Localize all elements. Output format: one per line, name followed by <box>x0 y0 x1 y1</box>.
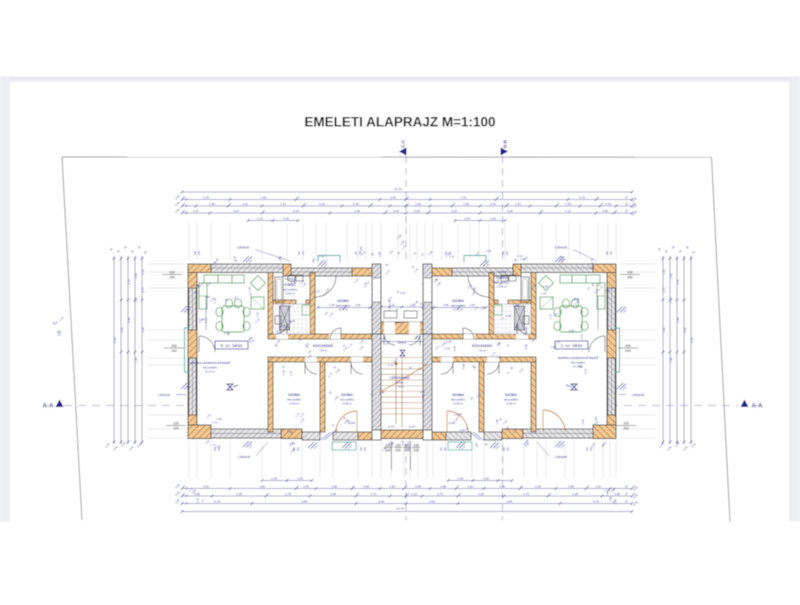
svg-text:1.98: 1.98 <box>513 304 519 308</box>
svg-text:240: 240 <box>594 416 598 421</box>
svg-text:1.93: 1.93 <box>303 484 309 488</box>
svg-text:100: 100 <box>355 250 358 255</box>
svg-text:0.98: 0.98 <box>461 363 465 369</box>
svg-text:1.98: 1.98 <box>421 394 425 400</box>
svg-text:100: 100 <box>440 446 443 451</box>
svg-text:2.16: 2.16 <box>444 346 450 350</box>
svg-text:4.46: 4.46 <box>676 317 680 323</box>
svg-text:12.58 m²: 12.58 m² <box>338 309 348 312</box>
svg-text:15: 15 <box>305 344 309 347</box>
svg-text:100: 100 <box>413 443 419 447</box>
svg-text:pm60: pm60 <box>449 421 456 425</box>
svg-text:90: 90 <box>485 443 488 447</box>
svg-text:1.03: 1.03 <box>541 291 547 295</box>
svg-text:7.51 m²: 7.51 m² <box>319 350 328 353</box>
svg-text:1.03: 1.03 <box>242 202 248 206</box>
svg-text:200: 200 <box>297 446 300 451</box>
svg-text:2.38: 2.38 <box>236 492 242 496</box>
svg-text:0.90: 0.90 <box>443 303 449 307</box>
svg-text:1.06: 1.06 <box>662 327 666 333</box>
svg-text:90: 90 <box>579 365 582 369</box>
svg-text:2.40: 2.40 <box>379 390 385 394</box>
svg-text:0.10: 0.10 <box>490 202 496 206</box>
svg-text:240: 240 <box>171 349 177 353</box>
svg-text:2.20: 2.20 <box>411 492 417 496</box>
svg-text:NAPPALI-KONYHA-ÉTKEZŐ: NAPPALI-KONYHA-ÉTKEZŐ <box>558 355 599 360</box>
svg-text:1.98: 1.98 <box>216 417 222 421</box>
svg-text:3. sz. lakás: 3. sz. lakás <box>561 343 584 348</box>
svg-text:1.98: 1.98 <box>551 345 557 349</box>
svg-text:pm10: pm10 <box>388 425 395 429</box>
svg-text:2.78: 2.78 <box>285 492 291 496</box>
svg-text:8. sz. lakás: 8. sz. lakás <box>221 343 244 348</box>
svg-text:0.97: 0.97 <box>193 209 199 213</box>
svg-text:75: 75 <box>333 366 336 370</box>
svg-text:240: 240 <box>420 390 425 394</box>
svg-text:2.10: 2.10 <box>579 334 583 340</box>
svg-text:0.90: 0.90 <box>602 209 608 213</box>
svg-text:100: 100 <box>293 446 296 451</box>
svg-text:1.50: 1.50 <box>463 202 469 206</box>
svg-text:3.98: 3.98 <box>301 499 307 503</box>
svg-text:2.16: 2.16 <box>662 269 666 275</box>
svg-text:240: 240 <box>359 246 363 251</box>
svg-text:2.30: 2.30 <box>353 202 359 206</box>
svg-text:1.22: 1.22 <box>257 216 263 220</box>
svg-text:Lábazat: Lábazat <box>237 246 249 250</box>
svg-text:0.90: 0.90 <box>393 209 399 213</box>
svg-text:2.40: 2.40 <box>400 291 406 295</box>
svg-text:lakó padlóba: lakó padlóba <box>203 367 218 370</box>
svg-text:KÖZLEKEDŐ: KÖZLEKEDŐ <box>313 343 334 348</box>
svg-text:Lábazat: Lábazat <box>632 393 644 397</box>
svg-text:2.10: 2.10 <box>569 329 575 333</box>
svg-text:4.66: 4.66 <box>683 327 687 333</box>
svg-text:1.50: 1.50 <box>565 202 571 206</box>
svg-text:0.98: 0.98 <box>415 484 421 488</box>
svg-text:0.98: 0.98 <box>277 330 283 334</box>
svg-text:lakó padlóba: lakó padlóba <box>283 289 298 292</box>
svg-text:12.58 m²: 12.58 m² <box>453 403 463 406</box>
svg-text:MOSDÓ: MOSDÓ <box>497 271 507 274</box>
svg-text:1.03: 1.03 <box>256 312 260 318</box>
svg-text:lakó padlóba: lakó padlóba <box>451 305 466 308</box>
svg-text:1.98: 1.98 <box>134 357 138 363</box>
svg-text:lakó padlóba: lakó padlóba <box>287 399 302 402</box>
svg-text:1.98: 1.98 <box>568 484 574 488</box>
svg-text:1.75: 1.75 <box>290 319 296 323</box>
svg-text:2.75: 2.75 <box>141 287 145 293</box>
svg-text:SZOBA: SZOBA <box>288 393 300 397</box>
svg-text:2.16: 2.16 <box>247 287 251 293</box>
svg-text:200: 200 <box>385 449 391 453</box>
svg-text:200: 200 <box>395 449 401 453</box>
svg-text:2.16: 2.16 <box>141 269 145 275</box>
svg-text:A-A: A-A <box>752 403 764 410</box>
svg-text:30: 30 <box>329 391 333 394</box>
svg-text:Lábazat: Lábazat <box>555 246 567 250</box>
svg-text:2.38: 2.38 <box>572 492 578 496</box>
svg-text:100: 100 <box>623 421 629 425</box>
svg-text:2.75: 2.75 <box>370 492 376 496</box>
svg-text:100: 100 <box>395 443 401 447</box>
svg-text:1.90: 1.90 <box>134 273 138 279</box>
svg-text:A-A: A-A <box>43 403 55 410</box>
svg-text:2.30: 2.30 <box>329 303 335 307</box>
svg-text:100: 100 <box>360 446 363 451</box>
svg-text:járólap: járólap <box>395 382 404 385</box>
svg-text:150: 150 <box>169 276 175 280</box>
svg-text:1.90: 1.90 <box>669 273 673 279</box>
svg-text:2.16: 2.16 <box>134 297 138 303</box>
svg-text:2.75: 2.75 <box>248 337 252 343</box>
svg-text:0.98: 0.98 <box>363 484 369 488</box>
svg-text:3.03: 3.03 <box>451 209 457 213</box>
svg-text:C-C: C-C <box>401 139 406 148</box>
svg-text:2.10: 2.10 <box>195 498 199 504</box>
svg-text:1.66: 1.66 <box>259 484 265 488</box>
svg-text:1.98: 1.98 <box>669 357 673 363</box>
svg-text:1.20: 1.20 <box>283 216 289 220</box>
svg-text:15: 15 <box>419 302 423 305</box>
svg-text:1.98: 1.98 <box>389 484 395 488</box>
svg-text:NAPPALI-KONYHA-ÉTKEZŐ: NAPPALI-KONYHA-ÉTKEZŐ <box>190 360 231 365</box>
svg-text:SZOBA: SZOBA <box>452 299 464 303</box>
svg-text:1.03: 1.03 <box>282 370 286 376</box>
svg-text:100: 100 <box>404 443 410 447</box>
svg-text:7.51 m²: 7.51 m² <box>478 350 487 353</box>
svg-text:100: 100 <box>502 250 505 255</box>
svg-text:200: 200 <box>444 446 447 451</box>
svg-text:75: 75 <box>249 293 253 296</box>
svg-text:6.78: 6.78 <box>593 499 599 503</box>
svg-text:1.50: 1.50 <box>486 249 492 253</box>
svg-text:Bejárat: Bejárat <box>398 341 406 345</box>
svg-text:2.75: 2.75 <box>676 279 680 285</box>
svg-text:24.16: 24.16 <box>396 506 404 510</box>
svg-text:0.75: 0.75 <box>579 195 585 199</box>
svg-text:3.28: 3.28 <box>330 492 336 496</box>
svg-text:0.90: 0.90 <box>414 209 420 213</box>
svg-text:Lábazat: Lábazat <box>238 455 250 459</box>
svg-text:200: 200 <box>218 446 221 451</box>
svg-text:1.50: 1.50 <box>209 202 215 206</box>
svg-text:2.75: 2.75 <box>662 287 666 293</box>
svg-text:0.98: 0.98 <box>446 339 452 343</box>
svg-text:1.98: 1.98 <box>608 496 612 502</box>
svg-text:1.03: 1.03 <box>314 290 320 294</box>
svg-text:2.75: 2.75 <box>291 280 297 284</box>
svg-text:200: 200 <box>507 446 510 451</box>
svg-text:2.20: 2.20 <box>415 202 421 206</box>
svg-text:3.28: 3.28 <box>478 492 484 496</box>
svg-text:1.06: 1.06 <box>520 257 526 261</box>
svg-text:6.56: 6.56 <box>690 337 694 343</box>
svg-text:1.93: 1.93 <box>467 484 473 488</box>
svg-text:75: 75 <box>326 288 330 291</box>
svg-text:5.29: 5.29 <box>293 209 299 213</box>
svg-text:1.98: 1.98 <box>331 484 337 488</box>
svg-text:100: 100 <box>586 446 589 451</box>
svg-text:2.75: 2.75 <box>437 492 443 496</box>
svg-text:100: 100 <box>503 446 506 451</box>
svg-text:1.50: 1.50 <box>496 355 502 359</box>
svg-text:1.75: 1.75 <box>590 258 594 264</box>
svg-text:1.48: 1.48 <box>457 476 463 480</box>
svg-text:lakó padlóba: lakó padlóba <box>504 399 519 402</box>
svg-text:pm60: pm60 <box>349 421 356 425</box>
svg-text:2.75: 2.75 <box>549 313 553 319</box>
svg-text:0.40: 0.40 <box>605 202 611 206</box>
svg-text:100: 100 <box>606 250 609 255</box>
svg-text:2.75: 2.75 <box>127 279 131 285</box>
svg-text:200: 200 <box>625 344 631 348</box>
svg-text:lakó padlóba: lakó padlóba <box>340 399 355 402</box>
svg-text:2.30: 2.30 <box>469 303 475 307</box>
svg-text:150: 150 <box>449 250 452 255</box>
svg-text:15: 15 <box>51 321 55 324</box>
svg-text:2.10: 2.10 <box>583 368 587 374</box>
svg-text:6.56: 6.56 <box>113 337 117 343</box>
svg-text:lakó padlóba: lakó padlóba <box>336 305 351 308</box>
svg-text:1.98: 1.98 <box>354 209 360 213</box>
svg-text:200: 200 <box>364 446 367 451</box>
svg-text:1.50: 1.50 <box>506 314 512 318</box>
svg-text:200: 200 <box>590 446 593 451</box>
svg-text:200: 200 <box>171 344 177 348</box>
svg-text:100: 100 <box>298 250 301 255</box>
svg-text:1.75: 1.75 <box>280 324 286 328</box>
svg-text:1.50: 1.50 <box>378 251 382 257</box>
svg-text:240: 240 <box>311 258 315 263</box>
svg-text:7.36: 7.36 <box>260 195 266 199</box>
svg-text:1.98: 1.98 <box>543 285 549 289</box>
svg-text:0.90: 0.90 <box>355 303 361 307</box>
svg-text:100: 100 <box>169 270 175 274</box>
svg-text:0.98: 0.98 <box>524 344 528 350</box>
svg-text:1.98: 1.98 <box>387 305 391 311</box>
svg-text:3.04: 3.04 <box>203 484 209 488</box>
svg-text:4.66: 4.66 <box>120 327 124 333</box>
svg-text:100: 100 <box>445 250 448 255</box>
svg-text:200: 200 <box>404 449 410 453</box>
svg-text:1.53: 1.53 <box>515 202 521 206</box>
svg-text:12.58 m²: 12.58 m² <box>289 403 299 406</box>
svg-text:7.56 m²: 7.56 m² <box>396 386 405 389</box>
svg-text:51.24 m²: 51.24 m² <box>205 371 215 374</box>
svg-text:2.40: 2.40 <box>453 345 457 351</box>
svg-text:1.03: 1.03 <box>56 330 60 336</box>
svg-text:12.58 m²: 12.58 m² <box>285 293 295 296</box>
svg-text:200: 200 <box>623 427 629 431</box>
svg-text:60: 60 <box>591 283 595 286</box>
svg-text:2.00: 2.00 <box>429 499 435 503</box>
svg-text:2.40: 2.40 <box>605 289 611 293</box>
svg-text:1.03: 1.03 <box>289 442 295 446</box>
svg-text:90: 90 <box>225 298 229 301</box>
svg-text:1.20: 1.20 <box>464 216 470 220</box>
svg-text:3.88: 3.88 <box>614 492 620 496</box>
svg-text:EMELETI ALAPRAJZ M=1:100: EMELETI ALAPRAJZ M=1:100 <box>304 115 495 130</box>
svg-text:30: 30 <box>498 418 502 421</box>
svg-text:Lábazat: Lábazat <box>158 393 170 397</box>
svg-text:pm10: pm10 <box>409 425 416 429</box>
svg-text:1.98: 1.98 <box>499 484 505 488</box>
svg-text:1.06: 1.06 <box>141 327 145 333</box>
svg-text:3.14: 3.14 <box>233 209 239 213</box>
svg-text:SZOBA: SZOBA <box>452 393 464 397</box>
svg-text:150: 150 <box>198 250 201 255</box>
svg-text:240: 240 <box>625 349 631 353</box>
svg-text:6.78: 6.78 <box>214 499 220 503</box>
svg-text:SZOBA: SZOBA <box>505 393 517 397</box>
svg-text:7.76: 7.76 <box>460 195 466 199</box>
svg-text:1.66: 1.66 <box>535 484 541 488</box>
svg-text:150: 150 <box>610 250 613 255</box>
svg-text:2.16: 2.16 <box>669 297 673 303</box>
svg-text:1.48: 1.48 <box>271 476 277 480</box>
svg-text:Lábazat: Lábazat <box>555 455 567 459</box>
svg-text:4.08: 4.08 <box>506 499 512 503</box>
svg-text:12.58 m²: 12.58 m² <box>342 403 352 406</box>
svg-text:100: 100 <box>173 421 179 425</box>
svg-text:2.14: 2.14 <box>565 209 571 213</box>
svg-text:2.00: 2.00 <box>378 499 384 503</box>
svg-text:200: 200 <box>173 427 179 431</box>
svg-text:100: 100 <box>385 443 391 447</box>
svg-text:60: 60 <box>513 258 517 261</box>
svg-text:150: 150 <box>627 276 633 280</box>
svg-text:1.06: 1.06 <box>319 254 325 258</box>
svg-text:12.58 m²: 12.58 m² <box>506 403 516 406</box>
svg-text:200: 200 <box>413 449 419 453</box>
svg-text:1.50: 1.50 <box>297 476 303 480</box>
svg-text:KÖZLEKEDŐ: KÖZLEKEDŐ <box>472 343 493 348</box>
svg-text:100: 100 <box>214 446 217 451</box>
svg-text:2.40: 2.40 <box>581 419 585 425</box>
svg-text:1.75: 1.75 <box>212 421 218 425</box>
svg-text:150: 150 <box>302 250 305 255</box>
svg-text:75: 75 <box>278 257 282 260</box>
svg-text:1.53: 1.53 <box>280 202 286 206</box>
svg-text:LÉPCSŐHÁZ: LÉPCSŐHÁZ <box>390 375 410 380</box>
svg-text:150: 150 <box>506 250 509 255</box>
svg-text:2.46: 2.46 <box>390 195 396 199</box>
svg-text:1.03: 1.03 <box>287 430 293 434</box>
svg-text:150: 150 <box>359 250 362 255</box>
svg-text:1.22: 1.22 <box>490 216 496 220</box>
svg-text:30: 30 <box>385 263 388 267</box>
svg-text:100: 100 <box>194 250 197 255</box>
svg-text:2.40: 2.40 <box>606 491 610 497</box>
svg-text:90: 90 <box>510 366 513 370</box>
svg-text:90: 90 <box>371 252 375 255</box>
svg-text:2.10: 2.10 <box>194 291 200 295</box>
svg-text:4.46: 4.46 <box>127 317 131 323</box>
svg-text:1.98: 1.98 <box>440 484 446 488</box>
svg-text:2.16: 2.16 <box>388 363 394 367</box>
svg-text:1.04: 1.04 <box>595 484 601 488</box>
svg-text:lakó padlóba: lakó padlóba <box>451 399 466 402</box>
svg-text:2.76: 2.76 <box>203 195 209 199</box>
svg-text:5.00: 5.00 <box>507 209 513 213</box>
svg-text:0.10: 0.10 <box>319 202 325 206</box>
svg-text:B-B: B-B <box>503 139 508 148</box>
svg-text:2.78: 2.78 <box>523 492 529 496</box>
svg-text:2.75: 2.75 <box>193 284 199 288</box>
svg-text:100: 100 <box>627 270 633 274</box>
svg-text:22.16: 22.16 <box>394 187 402 191</box>
svg-text:40x40: 40x40 <box>394 321 402 325</box>
svg-text:SZOBA: SZOBA <box>337 299 349 303</box>
svg-text:SZOBA: SZOBA <box>341 393 353 397</box>
svg-text:12.58 m²: 12.58 m² <box>497 286 507 289</box>
svg-text:1.75: 1.75 <box>289 370 293 376</box>
